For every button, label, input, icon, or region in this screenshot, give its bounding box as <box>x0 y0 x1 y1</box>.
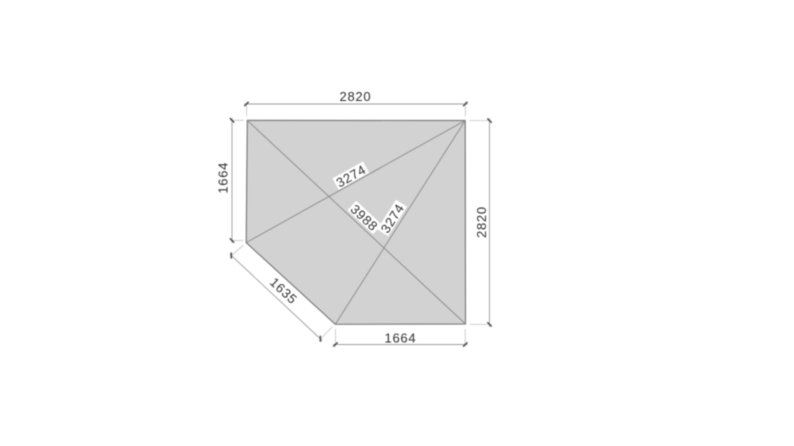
svg-text:1664: 1664 <box>215 162 230 194</box>
svg-text:2820: 2820 <box>474 206 489 238</box>
svg-text:2820: 2820 <box>340 89 372 104</box>
svg-text:1664: 1664 <box>385 331 417 346</box>
